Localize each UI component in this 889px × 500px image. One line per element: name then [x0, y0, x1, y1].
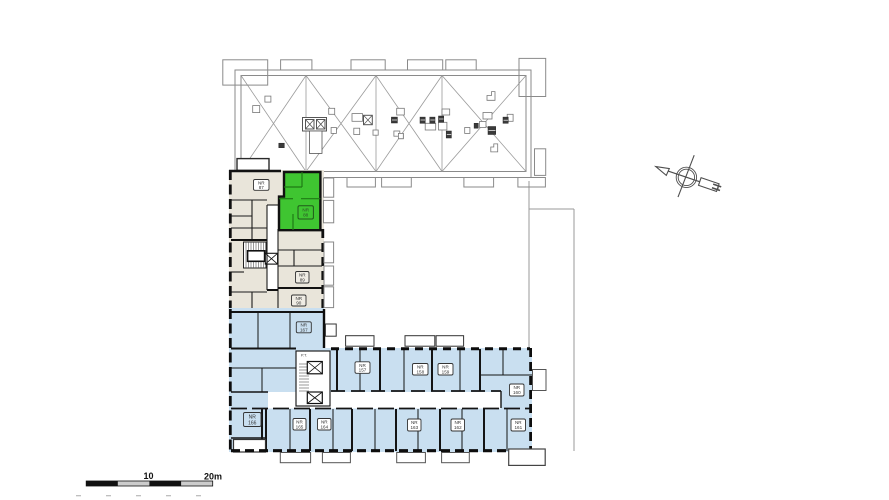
- svg-text:87: 87: [259, 185, 265, 190]
- svg-text:160: 160: [513, 390, 521, 395]
- svg-text:161: 161: [514, 425, 522, 430]
- svg-text:157: 157: [359, 368, 367, 373]
- svg-text:167: 167: [300, 328, 308, 333]
- svg-text:88: 88: [303, 213, 309, 218]
- svg-text:162: 162: [454, 425, 462, 430]
- svg-text:20m: 20m: [204, 471, 222, 481]
- svg-text:10: 10: [143, 471, 153, 481]
- svg-text:165: 165: [296, 424, 304, 429]
- svg-text:159: 159: [442, 369, 450, 374]
- svg-text:158: 158: [416, 369, 424, 374]
- svg-text:163: 163: [410, 425, 418, 430]
- svg-text:164: 164: [320, 424, 328, 429]
- svg-text:166: 166: [248, 420, 257, 426]
- svg-text:P.T.: P.T.: [301, 354, 307, 358]
- svg-text:90: 90: [296, 301, 302, 306]
- svg-text:89: 89: [300, 277, 306, 282]
